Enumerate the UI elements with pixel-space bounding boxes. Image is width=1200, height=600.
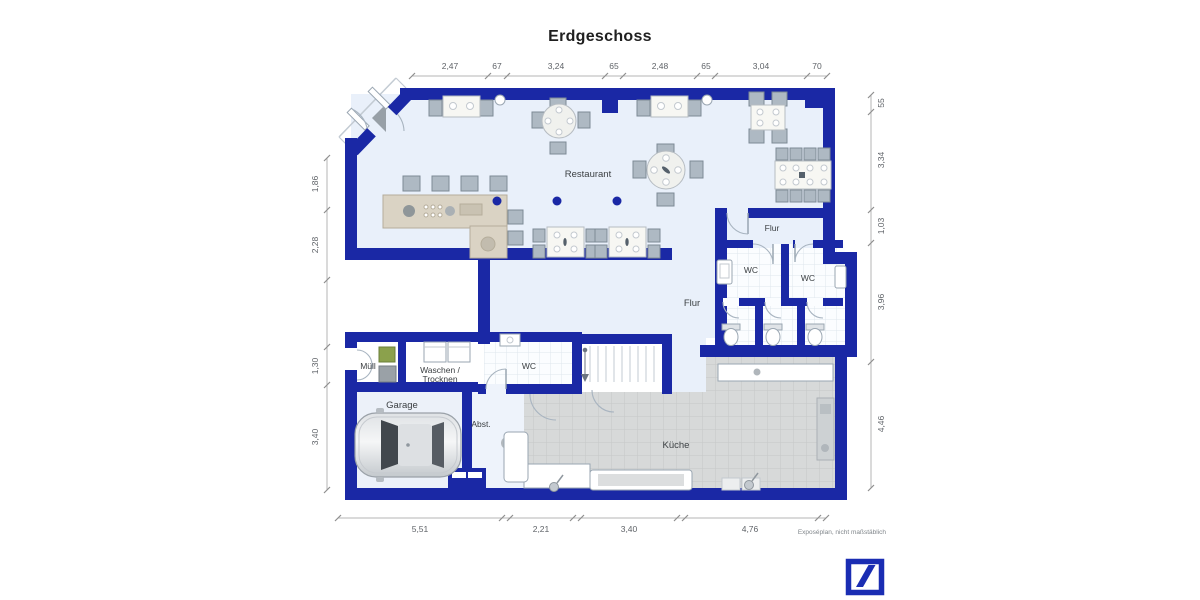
label-kueche: Küche [663, 440, 690, 451]
kitchen-appliance [821, 444, 829, 452]
bar-sink [445, 206, 455, 216]
label-flur-main: Flur [684, 298, 700, 309]
car-roof [398, 424, 432, 466]
label-flur-wc: Flur [765, 223, 780, 233]
footnote: Exposéplan, nicht maßstäblich [798, 529, 887, 536]
bar-tap [481, 237, 495, 251]
bar-stool [403, 176, 420, 191]
table-decor [799, 172, 805, 178]
kitchen-cabinet [722, 478, 740, 490]
waste-bin-green [379, 347, 395, 362]
sink-wc-small [500, 334, 520, 346]
dim-left-0: 1,86 [310, 175, 320, 192]
dimension-top: 2,47 67 3,24 65 2,48 65 3,04 70 [409, 61, 830, 79]
wall-right-mid [845, 258, 857, 357]
dim-left-2: 1,30 [310, 357, 320, 374]
stall-door-gap [807, 298, 823, 306]
kitchen-counter-top [718, 364, 833, 381]
floorplan-canvas: Restaurant Flur WC WC Flur Müll Waschen … [0, 0, 1200, 600]
dim-top-7: 70 [812, 61, 822, 71]
stall-door-gap [765, 298, 781, 306]
wall-restaurant-bottom-left [345, 248, 490, 260]
dim-top-4: 2,48 [652, 61, 669, 71]
wall-muell-top [345, 332, 478, 342]
stall-door-gap [723, 298, 739, 306]
side-table [508, 210, 523, 224]
dim-right-1: 3,34 [876, 151, 886, 168]
bar-stool [461, 176, 478, 191]
wall-stairs-right [662, 334, 672, 394]
dim-bottom-3: 4,76 [742, 524, 759, 534]
label-waschen-2: Trocknen [422, 374, 457, 384]
dim-top-6: 3,04 [753, 61, 770, 71]
kitchen-island-top [598, 474, 684, 486]
stove [820, 404, 831, 414]
dim-right-0: 55 [876, 98, 886, 108]
dim-top-1: 67 [492, 61, 502, 71]
dim-top-5: 65 [701, 61, 711, 71]
dimension-bottom: 5,51 2,21 3,40 4,76 [335, 515, 829, 534]
step [452, 472, 466, 478]
sink-wc-right [835, 266, 846, 288]
bar-register [460, 204, 482, 215]
car-windshield [381, 420, 398, 470]
car-badge [406, 443, 410, 447]
car-rear-window [432, 422, 444, 468]
wall-stall-div2 [797, 298, 805, 345]
wall-right-lower [835, 357, 847, 500]
washing-machine [424, 342, 446, 362]
wcsmall-door-gap [486, 384, 506, 394]
dim-top-0: 2,47 [442, 61, 459, 71]
wall-column [702, 95, 712, 105]
car [355, 408, 461, 482]
wall-wcsmall-top [478, 332, 582, 342]
label-garage: Garage [386, 400, 418, 411]
label-restaurant: Restaurant [565, 169, 612, 180]
kitchen-faucet [754, 369, 761, 376]
label-wc-small: WC [522, 361, 536, 371]
dryer [448, 342, 470, 362]
dimension-left: 1,86 2,28 1,30 3,40 [310, 155, 330, 493]
dim-bottom-2: 3,40 [621, 524, 638, 534]
storage-cabinet [504, 432, 528, 482]
dim-right-3: 3,96 [876, 293, 886, 310]
deutsche-bank-logo-icon [849, 562, 882, 593]
wall-garage-top [345, 382, 478, 392]
dim-left-1: 2,28 [310, 236, 320, 253]
column [613, 197, 622, 206]
wall-muell-divider [398, 336, 406, 390]
muell-door-gap [345, 348, 357, 370]
dimension-right: 55 3,34 1,03 3,96 4,46 [868, 92, 886, 491]
table-4seat [595, 227, 660, 258]
wall-garage-right [462, 392, 472, 468]
column [553, 197, 562, 206]
dim-top-2: 3,24 [548, 61, 565, 71]
dim-bottom-1: 2,21 [533, 524, 550, 534]
dim-right-4: 4,46 [876, 415, 886, 432]
dim-left-3: 3,40 [310, 428, 320, 445]
wall-column [495, 95, 505, 105]
label-muell: Müll [360, 361, 376, 371]
car-mirror [376, 477, 384, 482]
wall-left-upper [345, 138, 357, 260]
wall-flur-left [478, 248, 490, 344]
label-wc-left: WC [744, 265, 758, 275]
wall-stairs-top [582, 334, 672, 344]
wall-pillar [602, 100, 618, 113]
bar-coffee-machine [403, 205, 415, 217]
dim-bottom-0: 5,51 [412, 524, 429, 534]
wall-stall-div1 [755, 298, 763, 345]
table-4seat [533, 227, 598, 258]
bar-stool [490, 176, 507, 191]
column [493, 197, 502, 206]
wall-wc-divider [781, 244, 789, 302]
step [468, 472, 482, 478]
label-wc-right: WC [801, 273, 815, 283]
corridor-floor [484, 254, 715, 338]
side-table [508, 231, 523, 245]
label-abst: Abst. [471, 419, 490, 429]
car-mirror [376, 408, 384, 413]
page-title: Erdgeschoss [548, 28, 652, 45]
wall-wcblock-top [748, 208, 823, 218]
dim-right-2: 1,03 [876, 217, 886, 234]
waste-bin-gray [379, 366, 396, 382]
bar-stool [432, 176, 449, 191]
dim-top-3: 65 [609, 61, 619, 71]
